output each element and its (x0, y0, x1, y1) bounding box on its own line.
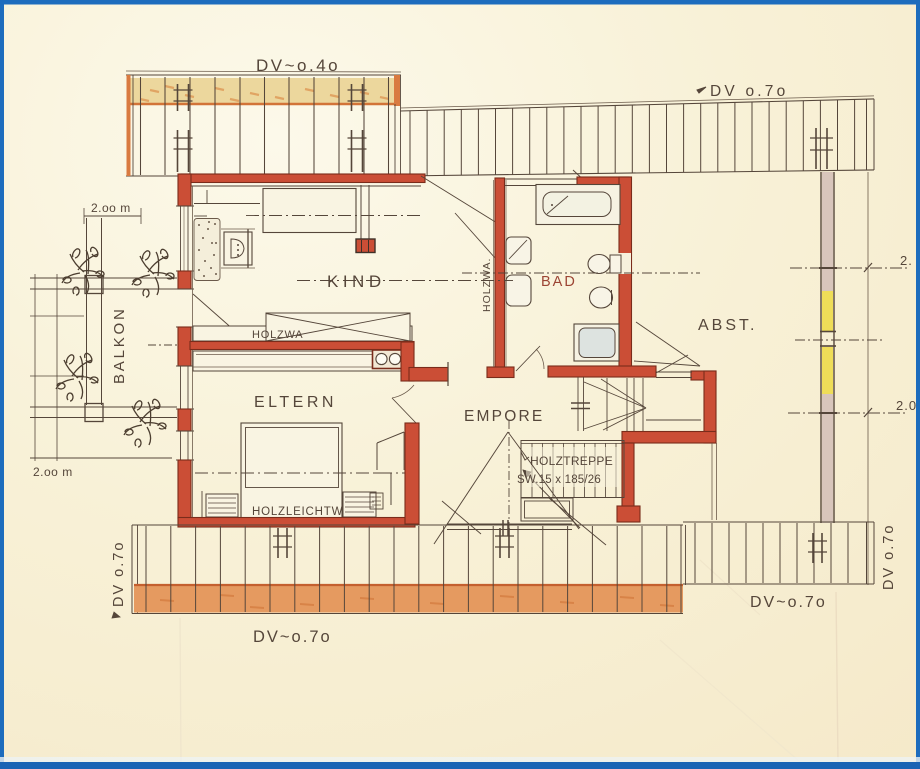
svg-text:HOLZWA.: HOLZWA. (481, 258, 493, 312)
svg-text:DV~o.7o: DV~o.7o (253, 628, 332, 646)
svg-text:DV o.7o: DV o.7o (111, 541, 127, 607)
svg-text:KIND: KIND (327, 272, 386, 291)
svg-text:DV o.7o: DV o.7o (881, 524, 897, 590)
svg-text:HOLZTREPPE: HOLZTREPPE (530, 454, 613, 468)
svg-text:2.0: 2.0 (896, 398, 917, 413)
svg-text:EMPORE: EMPORE (464, 408, 544, 425)
svg-text:HOLZLEICHTW: HOLZLEICHTW (252, 506, 343, 518)
svg-text:BAD: BAD (541, 274, 577, 290)
svg-text:DV o.7o: DV o.7o (710, 83, 788, 100)
svg-text:2.oo m: 2.oo m (91, 201, 131, 215)
svg-text:DV~o.4o: DV~o.4o (256, 56, 340, 75)
svg-text:2.: 2. (900, 253, 913, 268)
svg-text:2.oo m: 2.oo m (33, 465, 73, 479)
svg-text:ABST.: ABST. (698, 317, 757, 334)
svg-text:ELTERN: ELTERN (254, 394, 337, 411)
svg-text:HOLZWA: HOLZWA (252, 329, 303, 341)
svg-text:SW.15 x 185/26: SW.15 x 185/26 (517, 474, 601, 486)
svg-text:BALKON: BALKON (111, 306, 128, 384)
svg-text:DV~o.7o: DV~o.7o (750, 594, 827, 611)
